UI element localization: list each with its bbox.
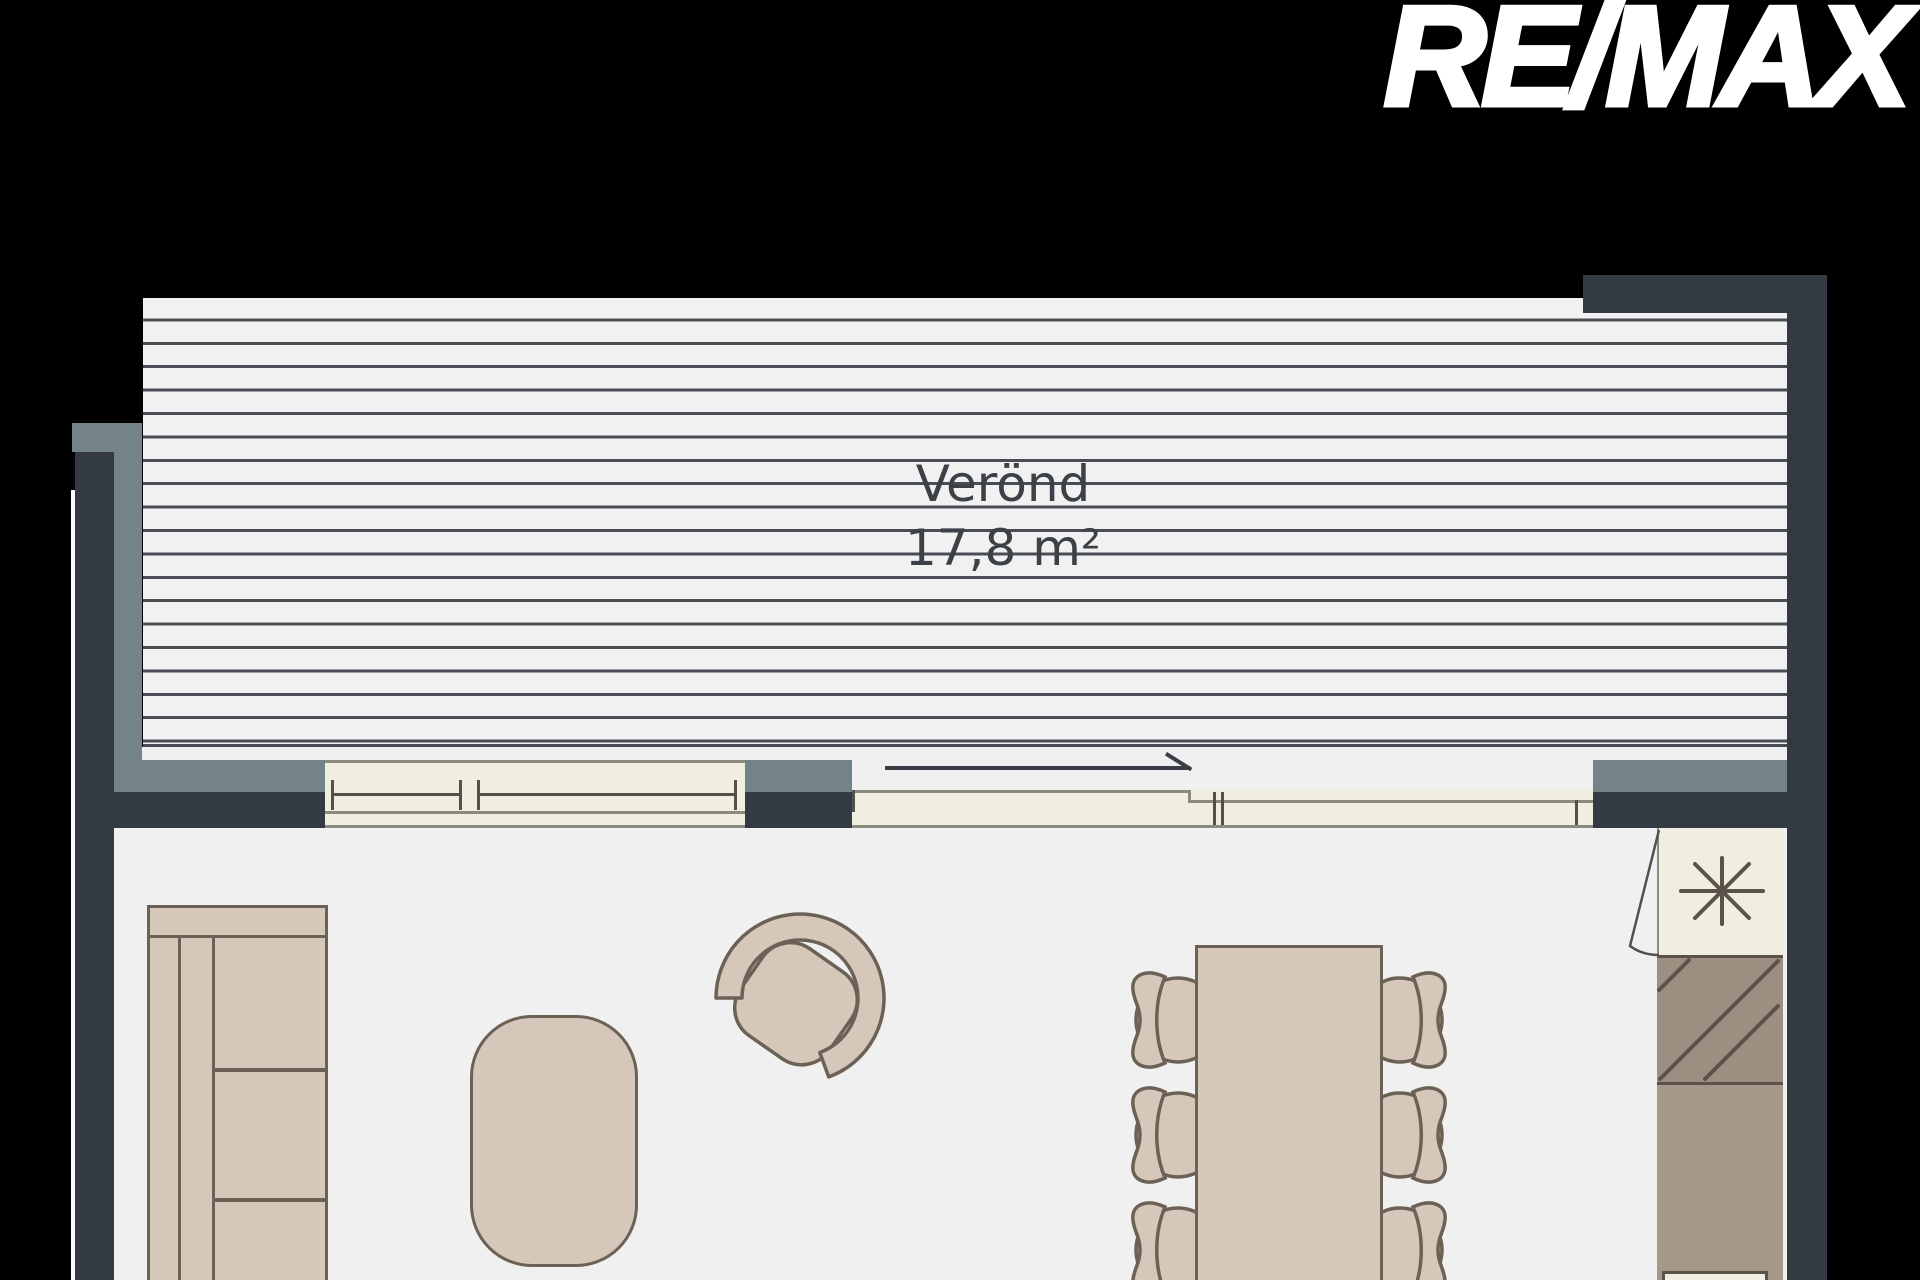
floor-plan-image: Verönd 17,8 m² RE/MAX [0,0,1920,1280]
sliding-door [852,760,1593,828]
window-frame-line [325,760,745,763]
bottom-right-wall [1593,792,1787,828]
kitchen-counter [1657,1082,1783,1280]
room-area: 17,8 m² [803,516,1203,580]
kitchen-sink [1662,1271,1768,1280]
window-sill-line [325,811,745,814]
sofa-backrest-line [212,935,215,1280]
bottom-right-wall-gray [1593,760,1787,792]
remax-logo: RE/MAX [1384,0,1906,128]
sliding-door-track-line [1190,800,1593,803]
coffee-table [470,1015,638,1267]
bottom-left-wall [114,792,325,828]
sliding-door-track-line [852,790,1190,793]
armchair [705,903,895,1093]
sliding-door-jamb [1575,800,1578,825]
window-glass-line [477,793,737,796]
door-leaf-icon [1618,826,1666,958]
sliding-door-frame-line [852,825,1593,828]
sofa-armrest-line [150,935,325,938]
window-mullion [459,780,462,810]
double-window [325,760,745,828]
window-mullion [331,780,334,810]
window-mullion [734,780,737,810]
window-mullion [477,780,480,810]
sofa-cushion-divider [212,1198,325,1202]
hatch-lines-icon [1657,958,1783,1082]
cooktop-burner-icon [1659,828,1785,955]
left-exterior-wall [75,452,114,1280]
window-pillar-gray [745,760,852,792]
dining-table [1195,945,1383,1280]
right-exterior-wall [1787,275,1827,1280]
sofa [147,905,328,1280]
window-pillar [745,792,852,828]
left-railing-cap [72,423,142,452]
sofa-cushion-divider [212,1068,325,1072]
sliding-door-jamb [852,790,855,812]
left-railing [114,452,142,790]
bottom-left-wall-gray [114,760,325,792]
cooktop [1657,828,1783,955]
sliding-door-mullion [1213,792,1216,825]
room-name: Verönd [803,452,1203,516]
window-frame-line [325,825,745,828]
sofa-backrest-line [178,935,181,1280]
veranda-label: Verönd 17,8 m² [803,452,1203,580]
kitchen-hatched-counter [1657,955,1783,1082]
sliding-door-mullion [1221,792,1224,825]
sliding-door-leaf [885,766,1190,770]
window-glass-line [331,793,462,796]
